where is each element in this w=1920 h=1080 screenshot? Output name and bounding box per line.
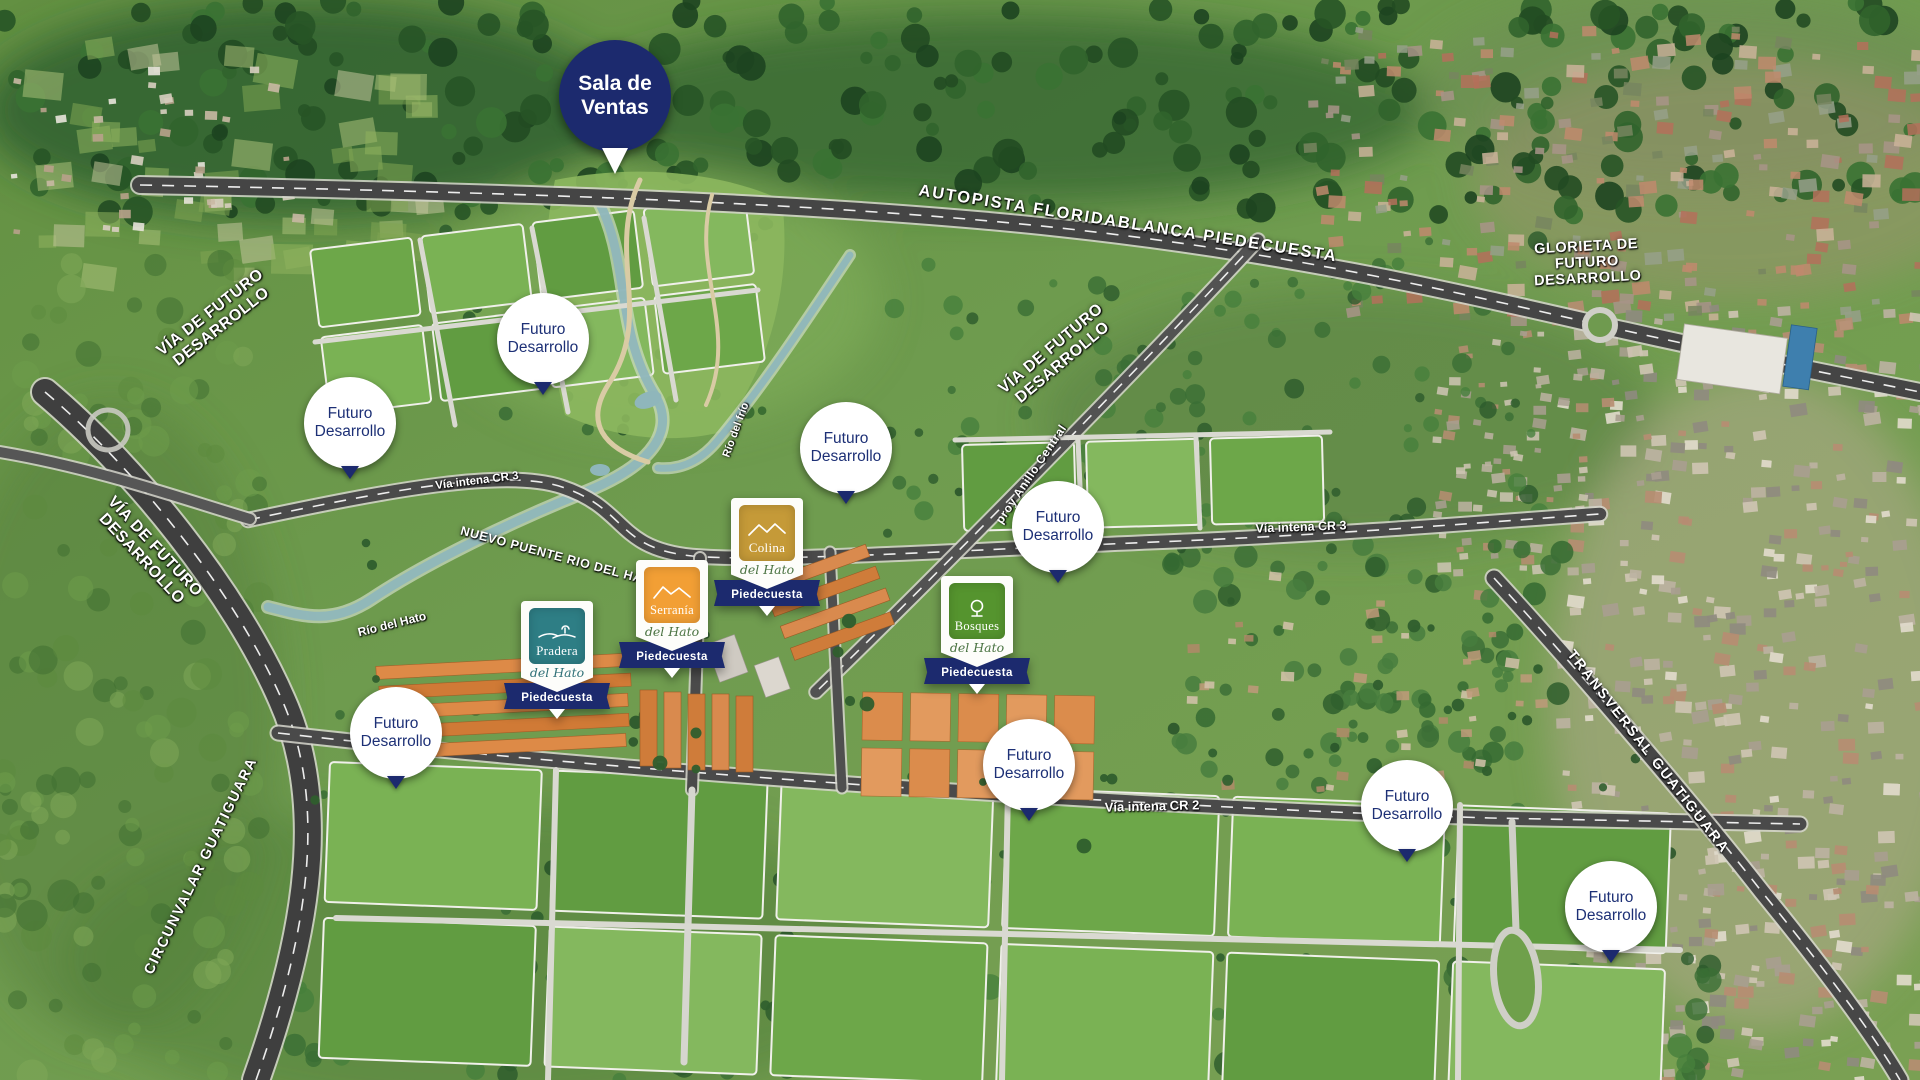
brand-script: del Hato [521, 665, 593, 680]
sala-de-ventas-label: Sala de Ventas [559, 40, 671, 152]
road-label-cr2: Vía intena CR 2 [1104, 797, 1199, 814]
project-name: Pradera [536, 643, 578, 659]
masterplan-map: AUTOPISTA FLORIDABLANCA PIEDECUESTA GLOR… [0, 0, 1920, 1080]
pin-pointer-icon [341, 466, 359, 479]
colina-mountains-icon [746, 520, 788, 540]
pin-pointer-icon [1049, 570, 1067, 583]
brand-script: del Hato [636, 624, 708, 639]
sala-pin-pointer-icon [602, 148, 628, 174]
place-label-glorieta: GLORIETA DE FUTURO DESARROLLO [1525, 235, 1649, 290]
pin-pointer-icon [837, 491, 855, 504]
futuro-desarrollo-pin-4[interactable]: Futuro Desarrollo [1012, 481, 1104, 583]
futuro-desarrollo-pin-3[interactable]: Futuro Desarrollo [800, 402, 892, 504]
project-card-bosques[interactable]: Bosques del Hato Piedecuesta [924, 576, 1030, 694]
project-card-pradera[interactable]: Pradera del Hato Piedecuesta [504, 601, 610, 719]
sala-de-ventas-pin[interactable]: Sala de Ventas [559, 40, 671, 174]
card-pointer-icon [969, 684, 985, 694]
pin-pointer-icon [534, 382, 552, 395]
project-name: Bosques [955, 619, 999, 634]
futuro-desarrollo-pin-8[interactable]: Futuro Desarrollo [1565, 861, 1657, 963]
pin-pointer-icon [1020, 808, 1038, 821]
bosques-tree-icon [956, 599, 998, 619]
brand-script: del Hato [941, 640, 1013, 655]
project-card-colina[interactable]: Colina del Hato Piedecuesta [714, 498, 820, 616]
project-name: Serranía [650, 603, 694, 618]
brand-script: del Hato [731, 562, 803, 577]
card-pointer-icon [664, 668, 680, 678]
serrania-mountains-icon [651, 583, 693, 603]
card-pointer-icon [759, 606, 775, 616]
pin-pointer-icon [387, 776, 405, 789]
pin-pointer-icon [1602, 950, 1620, 963]
futuro-desarrollo-pin-2[interactable]: Futuro Desarrollo [304, 377, 396, 479]
futuro-desarrollo-pin-6[interactable]: Futuro Desarrollo [983, 719, 1075, 821]
pradera-meadow-icon [536, 623, 578, 643]
project-name: Colina [749, 540, 785, 556]
pin-pointer-icon [1398, 849, 1416, 862]
card-pointer-icon [549, 709, 565, 719]
futuro-desarrollo-pin-7[interactable]: Futuro Desarrollo [1361, 760, 1453, 862]
project-card-serrania[interactable]: Serranía del Hato Piedecuesta [619, 560, 725, 678]
futuro-desarrollo-pin-5[interactable]: Futuro Desarrollo [350, 687, 442, 789]
futuro-desarrollo-pin-1[interactable]: Futuro Desarrollo [497, 293, 589, 395]
